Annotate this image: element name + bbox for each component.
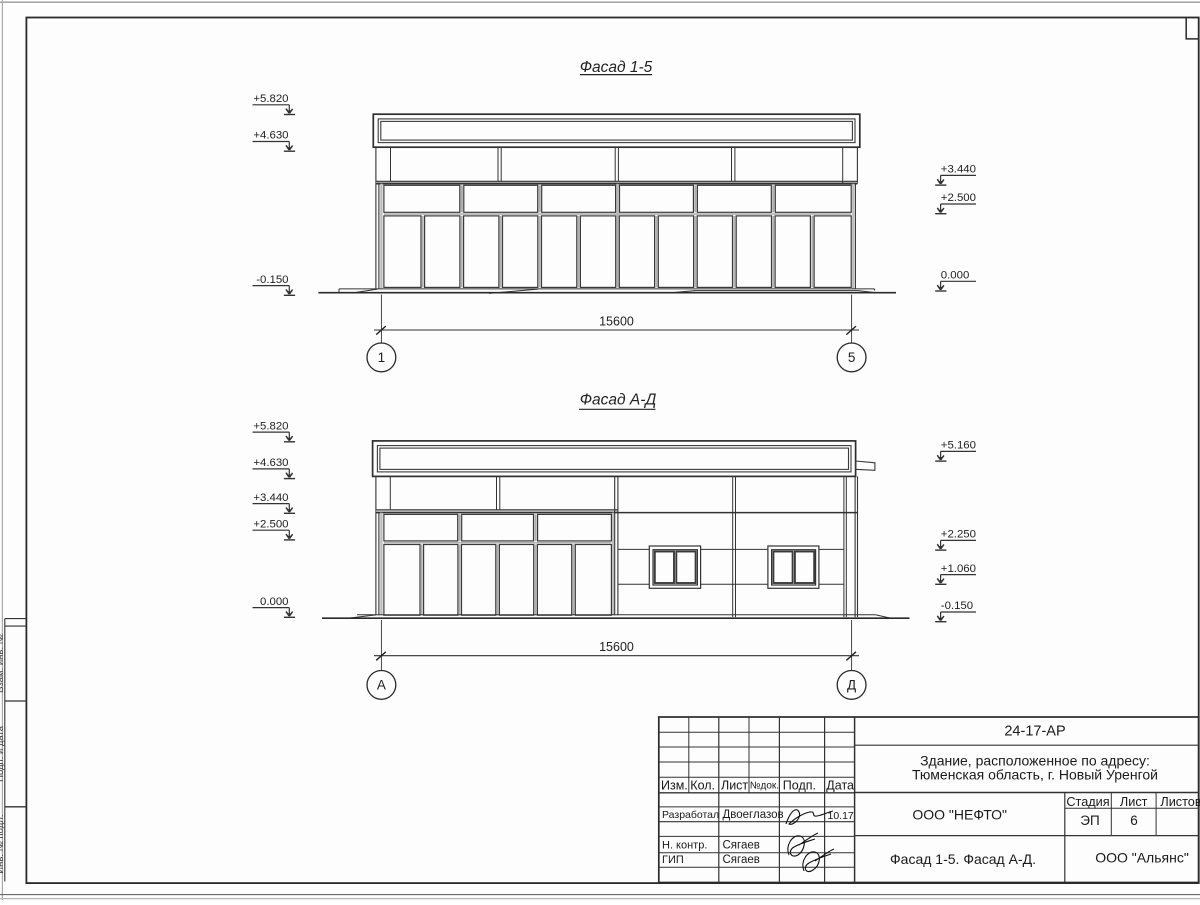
svg-text:15600: 15600 [599,640,634,654]
svg-text:+5.160: +5.160 [941,440,976,452]
svg-text:Разработал: Разработал [662,809,719,821]
svg-text:Подп. и дата: Подп. и дата [0,725,6,782]
svg-text:Фасад 1-5. Фасад А-Д.: Фасад 1-5. Фасад А-Д. [890,851,1036,867]
svg-text:Лист: Лист [721,778,748,792]
svg-text:ООО "Альянс": ООО "Альянс" [1095,850,1189,866]
svg-text:Листов: Листов [1160,795,1200,809]
svg-text:-0.150: -0.150 [256,274,288,286]
svg-text:ЭП: ЭП [1080,813,1099,828]
svg-text:24-17-АР: 24-17-АР [1004,723,1065,739]
svg-text:5: 5 [848,350,856,365]
svg-text:Кол.: Кол. [690,778,715,792]
svg-text:Сягаев: Сягаев [723,854,760,866]
svg-text:0.000: 0.000 [941,270,970,282]
svg-text:+4.630: +4.630 [253,457,288,469]
svg-text:ГИП: ГИП [662,854,684,866]
svg-text:0.000: 0.000 [260,596,289,608]
svg-text:Взам. инв. №: Взам. инв. № [0,634,6,693]
svg-text:Сягаев: Сягаев [723,839,760,851]
svg-text:Двоеглазов: Двоеглазов [723,809,784,821]
svg-text:Дата: Дата [826,778,854,792]
svg-text:+2.250: +2.250 [941,529,976,541]
svg-text:А: А [377,678,386,693]
svg-text:+5.820: +5.820 [253,420,288,432]
svg-text:Д: Д [847,678,856,693]
svg-text:Изм.: Изм. [661,778,688,792]
svg-text:-0.150: -0.150 [941,600,973,612]
svg-text:Стадия: Стадия [1066,795,1109,809]
svg-text:ООО "НЕФТО": ООО "НЕФТО" [912,807,1007,823]
svg-text:Инв. № подл.: Инв. № подл. [0,815,6,874]
svg-text:+5.820: +5.820 [253,93,288,105]
svg-text:Фасад 1-5: Фасад 1-5 [580,59,653,76]
svg-text:15600: 15600 [599,314,634,328]
svg-text:№док.: №док. [750,781,779,792]
svg-text:+2.500: +2.500 [941,192,976,204]
svg-text:6: 6 [1130,813,1138,828]
svg-text:+3.440: +3.440 [253,492,288,504]
svg-text:Фасад А-Д: Фасад А-Д [580,392,657,409]
svg-text:Лист: Лист [1120,795,1148,809]
svg-text:+3.440: +3.440 [941,164,976,176]
svg-text:Тюменская область, г. Новый Ур: Тюменская область, г. Новый Уренгой [912,767,1158,783]
svg-text:1: 1 [378,350,386,365]
svg-text:Подп.: Подп. [783,778,816,792]
svg-text:Н. контр.: Н. контр. [662,839,707,851]
svg-text:+4.630: +4.630 [253,130,288,142]
svg-text:+1.060: +1.060 [941,563,976,575]
svg-text:+2.500: +2.500 [253,518,288,530]
